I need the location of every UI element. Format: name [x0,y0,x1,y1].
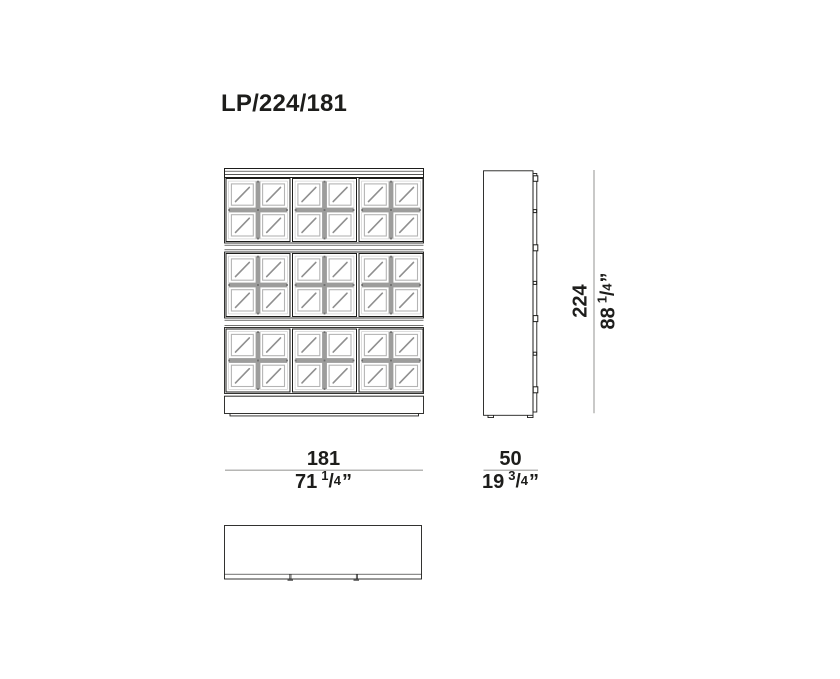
hinge-icon [533,387,538,393]
depth-inches-label: 193/4” [483,472,538,492]
hinge-icon [533,316,538,322]
width-inches-label: 711/4” [224,472,423,492]
cornice [225,169,424,178]
side-view [484,171,538,418]
front-view [225,169,424,416]
door-module [293,179,357,242]
side-carcass [484,171,534,415]
height-cm-label: 224 [571,241,591,362]
door-module [226,254,290,317]
hinge-icon [533,245,538,251]
technical-drawing-canvas: LP/224/181 181 711/4” 50 193/4” 224 881/… [0,0,840,679]
door-module [226,329,290,392]
door-module [293,329,357,392]
height-inches-label: 881/4” [599,241,619,362]
page-title: LP/224/181 [221,90,347,118]
hinge-icon [533,176,538,182]
hinge-icon [533,281,536,284]
hinge-icon [533,210,536,213]
drawing-linework [0,0,840,679]
plinth [225,396,424,413]
top-view [225,526,422,581]
door-module [359,254,423,317]
plan-outline [225,526,422,580]
hinge-icon [533,352,536,355]
door-module [359,329,423,392]
height-cm-value: 224 [571,284,591,317]
door-module [359,179,423,242]
door-module [226,179,290,242]
door-module [293,254,357,317]
